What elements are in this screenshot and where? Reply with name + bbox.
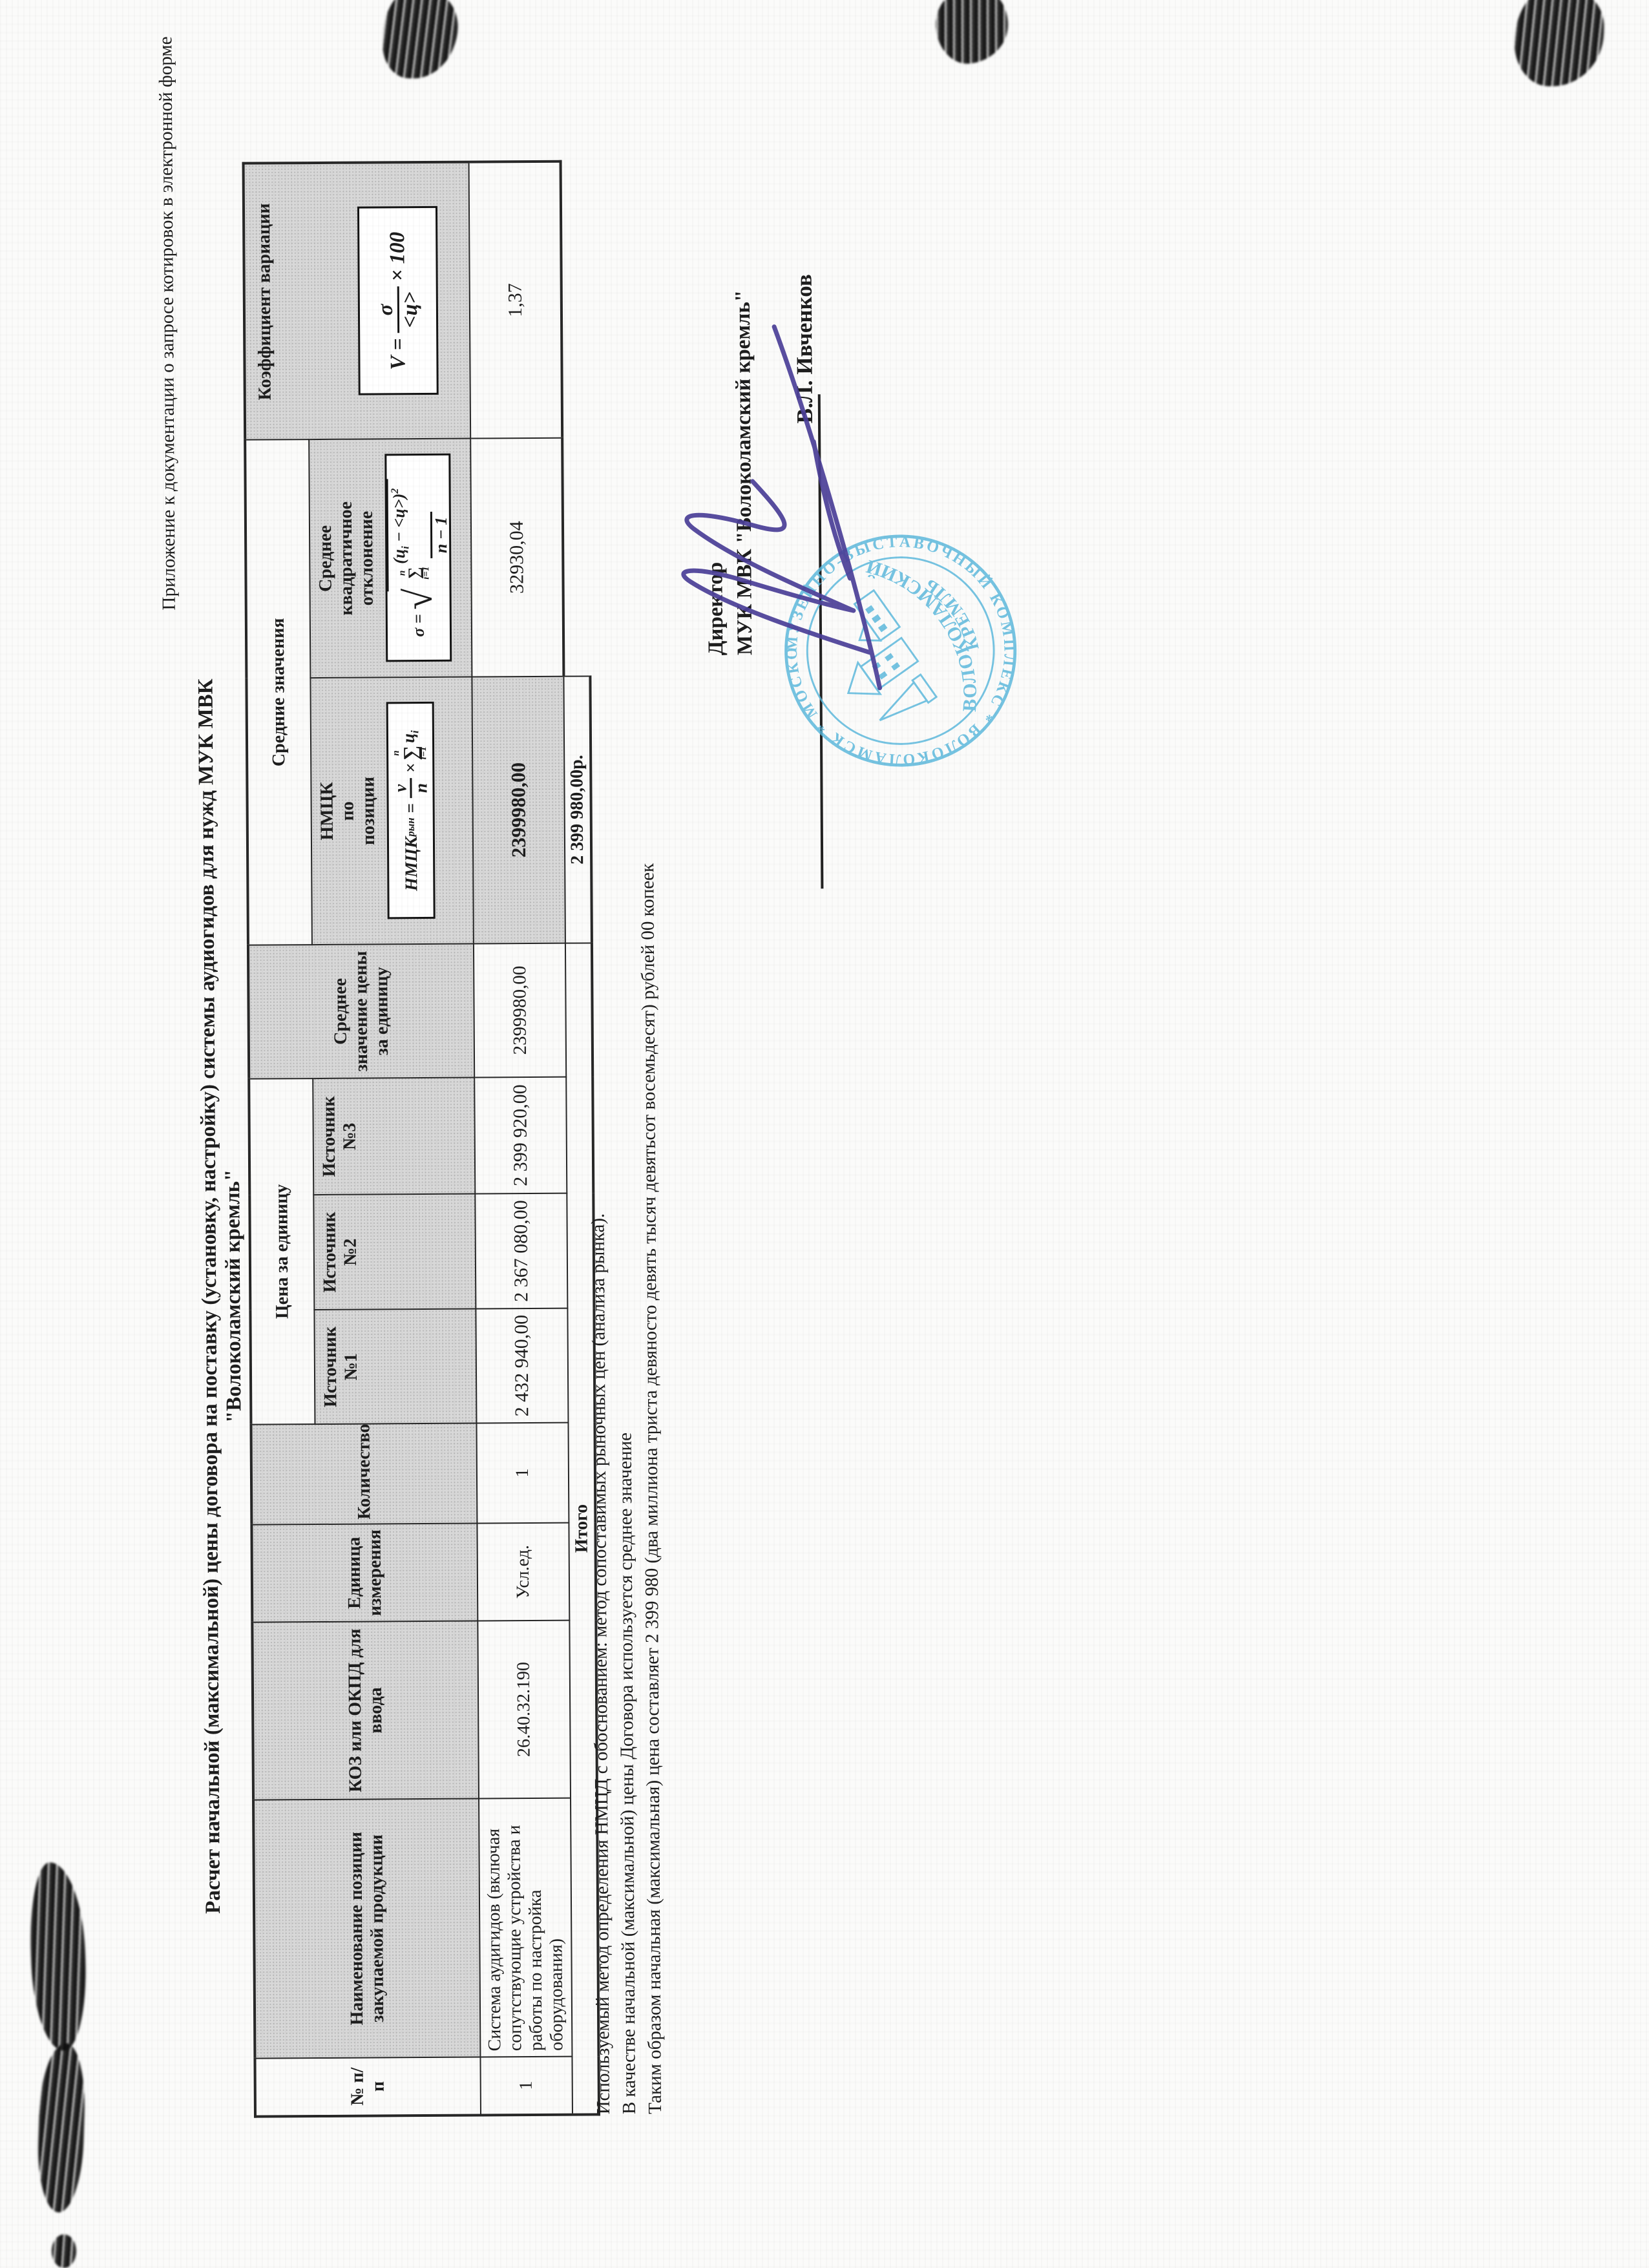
cell-avg-price: 2399980,00	[474, 943, 566, 1078]
col-header-avg-group: Средние значения	[245, 439, 312, 945]
total-empty-cell	[562, 437, 590, 676]
document-title: Расчет начальной (максимальной) цены дог…	[194, 631, 250, 1962]
scan-artifact	[52, 2234, 76, 2268]
cell-name: Система аудигидов (включая сопутствующие…	[479, 1798, 572, 2057]
col-header-price-group: Цена за единицу	[249, 1078, 315, 1425]
varcoef-label: Коэффициент вариации	[254, 168, 277, 435]
cell-qty: 1	[476, 1423, 569, 1524]
corner-note: Приложение к документации о запросе коти…	[155, 36, 180, 610]
formula-sigma-box: σ = √ n ∑ i=1 (цi − <ц>)2	[384, 454, 452, 662]
col-header-stddev: Среднее квадратичное отклонение σ = √ n …	[309, 439, 472, 678]
col-header-nmck: НМЦК по позиции НМЦКрын = v n × n ∑ i=1	[310, 677, 474, 945]
col-header-src2: Источник №2	[313, 1194, 476, 1310]
col-header-avg-price: Среднее значение цены за единицу	[248, 944, 474, 1079]
cell-varcoef: 1,37	[469, 162, 563, 439]
col-header-num: № п/п	[255, 2057, 481, 2117]
col-header-unit: Единица измерения	[251, 1524, 478, 1622]
cell-num: 1	[480, 2057, 572, 2116]
cell-src3: 2 399 920,00	[474, 1077, 567, 1194]
stddev-label: Среднее квадратичное отклонение	[315, 474, 378, 643]
total-empty-cell	[561, 161, 589, 437]
table-row: 1 Система аудигидов (включая сопутствующ…	[469, 162, 572, 2116]
formula-nmck-box: НМЦКрын = v n × n ∑ i=1 цi	[386, 702, 436, 919]
pricing-table: № п/п Наименование позиции закупаемой пр…	[242, 160, 600, 2117]
notes-block: Используемый метод определения НМЦД с об…	[585, 863, 671, 2115]
cell-code: 26.40.32.190	[478, 1621, 571, 1799]
col-header-src1: Источник №1	[314, 1309, 476, 1425]
cell-nmck: 2399980,00	[472, 677, 565, 944]
rotated-document: Приложение к документации о запросе коти…	[0, 0, 1649, 2267]
nmck-label: НМЦК по позиции	[317, 772, 379, 850]
scanned-page: Приложение к документации о запросе коти…	[0, 0, 1649, 2268]
col-header-qty: Количество	[251, 1423, 477, 1525]
signature-scribble	[653, 300, 895, 715]
cell-unit: Усл.ед.	[477, 1523, 569, 1621]
formula-v-box: V = σ <ц> × 100	[357, 206, 439, 395]
cell-src1: 2 432 940,00	[476, 1308, 568, 1423]
cell-stddev: 32930,04	[470, 438, 563, 677]
cell-src2: 2 367 080,00	[475, 1193, 567, 1309]
col-header-name: Наименование позиции закупаемой продукци…	[253, 1799, 480, 2059]
col-header-code: КОЗ или ОКПД для ввода	[252, 1621, 479, 1800]
col-header-varcoef: Коэффициент вариации V = σ <ц> × 100	[244, 162, 471, 440]
col-header-src3: Источник №3	[313, 1078, 475, 1195]
